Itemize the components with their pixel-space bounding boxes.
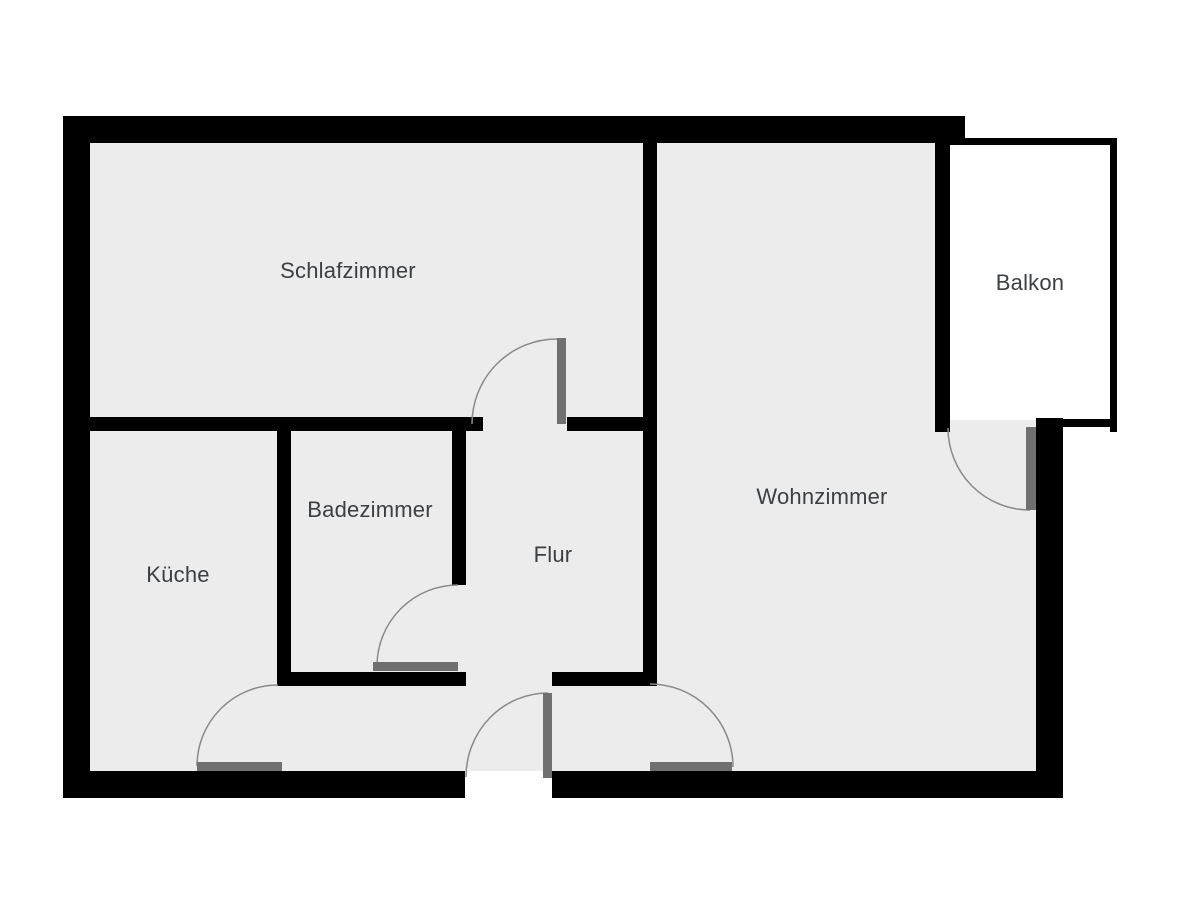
wall-outer-top [63, 116, 965, 143]
room-label-balkon: Balkon [996, 270, 1064, 296]
room-label-flur: Flur [534, 542, 573, 568]
room-label-badezimmer: Badezimmer [307, 497, 432, 523]
wall-badezimmer-bottom [277, 672, 466, 686]
wall-balcony-separator [935, 116, 950, 432]
floor-plan: Schlafzimmer Balkon Wohnzimmer Badezimme… [0, 0, 1200, 900]
wall-flur-bottom [552, 672, 657, 686]
room-label-schlafzimmer: Schlafzimmer [280, 258, 416, 284]
room-label-wohnzimmer: Wohnzimmer [756, 484, 887, 510]
wall-badezimmer-right [452, 431, 466, 585]
wall-outer-bottom-right [552, 771, 1063, 798]
door-leaf-schlafzimmer [557, 338, 566, 424]
wall-kueche-badezimmer [277, 431, 291, 685]
wall-outer-left [63, 116, 90, 798]
wall-bedroom-bottom-left [90, 417, 483, 431]
door-leaf-kueche [197, 762, 282, 771]
wall-balcony-bottom [1036, 419, 1117, 427]
room-label-kueche: Küche [146, 562, 209, 588]
wall-balcony-right [1110, 138, 1117, 432]
wall-balcony-top [950, 138, 1117, 145]
door-leaf-badezimmer [373, 662, 458, 671]
wall-flur-wohnzimmer [643, 143, 657, 685]
door-leaf-wohnzimmer [650, 762, 732, 771]
door-leaf-entrance [543, 693, 552, 778]
wall-outer-right [1036, 418, 1063, 798]
wall-outer-bottom-left [63, 771, 465, 798]
door-leaf-balkon [1026, 427, 1036, 510]
